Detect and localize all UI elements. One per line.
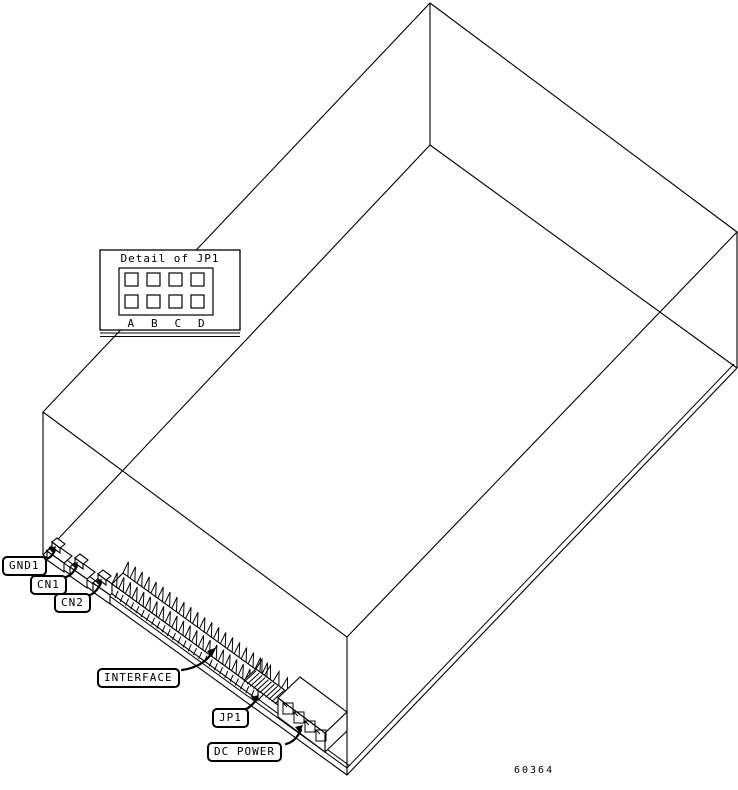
- callout-cn1: CN1: [30, 575, 67, 595]
- figure-part-number: 60364: [514, 765, 554, 776]
- callout-jp1: JP1: [212, 708, 249, 728]
- device-base-edge: [43, 368, 737, 775]
- callout-gnd1: GND1: [2, 556, 47, 576]
- jumper-column-a: A: [127, 317, 134, 330]
- detail-inset-title: Detail of JP1: [100, 252, 240, 265]
- device-hidden-edges: [43, 145, 737, 555]
- jumper-column-labels: A B C D: [119, 317, 213, 330]
- callout-interface: INTERFACE: [97, 668, 180, 688]
- jumper-column-c: C: [174, 317, 181, 330]
- dc-power-connector: [278, 677, 347, 752]
- interface-back-pin-row: [123, 562, 268, 678]
- device-wireframe: [43, 3, 737, 775]
- jumper-column-b: B: [151, 317, 158, 330]
- device-vertical-edges: [43, 3, 737, 775]
- connector-strip: [47, 538, 347, 752]
- device-base-edge-inner: [46, 364, 734, 768]
- jumper-column-d: D: [198, 317, 205, 330]
- callout-cn2: CN2: [54, 593, 91, 613]
- callout-dc-power: DC POWER: [207, 742, 282, 762]
- technical-diagram-page: Detail of JP1 A B C D GND1 CN1 CN2 INTER…: [0, 0, 738, 790]
- detail-inset-base-lines: [100, 333, 240, 337]
